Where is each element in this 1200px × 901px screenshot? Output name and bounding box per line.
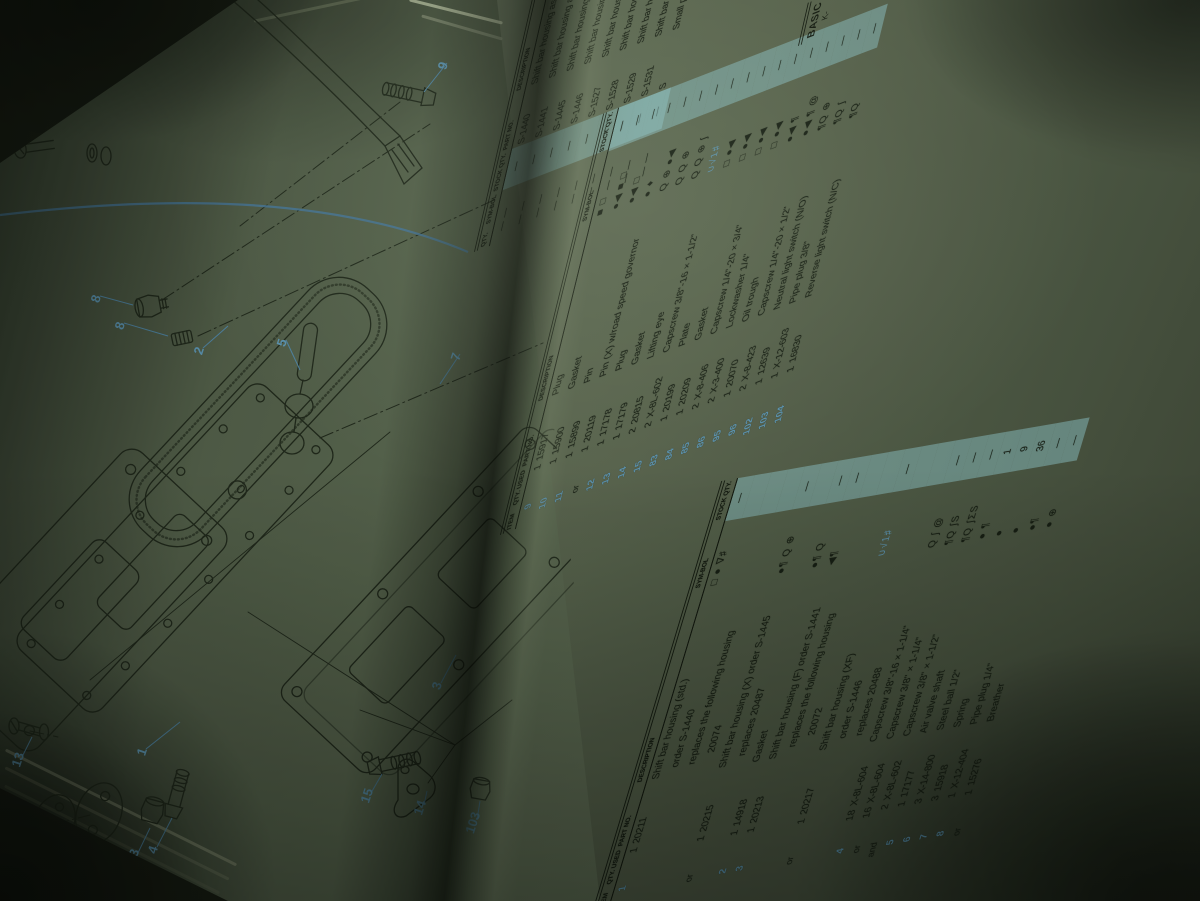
diagram-item-label: 83: [24, 873, 43, 891]
diagram-item-label: 103: [462, 810, 483, 835]
label-leader-line: [157, 818, 172, 847]
set-screw-drawing: [171, 330, 193, 346]
label-leader-line: [124, 323, 168, 336]
diagram-item-label: 7: [447, 351, 464, 363]
label-leader-line: [10, 818, 18, 848]
diagram-item-label: 5: [273, 337, 290, 349]
gasket-drawing: [112, 260, 404, 564]
diagram-item-label: 86: [0, 841, 15, 859]
label-leader-line: [146, 722, 180, 749]
diagram-item-label: 9: [434, 60, 451, 72]
pipe-plug-drawing: [133, 292, 169, 319]
label-leader-line: [85, 846, 97, 885]
label-leader-line: [38, 852, 52, 880]
main-housing-drawing: [0, 443, 233, 758]
housing-cover-drawing: [11, 378, 338, 718]
label-leader-line: [203, 326, 228, 348]
diagram-item-label: 3: [428, 680, 445, 692]
diagram-item-label: 8: [111, 320, 128, 332]
photo-of-open-parts-manual: 988257311386838410341514103 QTY.SYM-BOLS…: [0, 0, 1200, 901]
screw-drawing: [13, 135, 55, 158]
diagram-item-label: 4: [144, 843, 161, 855]
capscrew-drawing: [381, 79, 437, 108]
small-parts-drawing: [9, 718, 192, 855]
label-leader-line: [441, 655, 456, 683]
diagram-item-label: 8: [87, 293, 104, 305]
shift-bar-drawing: [232, 0, 422, 184]
label-leader-line: [100, 296, 133, 305]
diagram-item-label: 103: [121, 847, 142, 872]
centerline: [30, 102, 550, 824]
pointer-lines: [90, 432, 512, 783]
diagram-item-label: 84: [71, 878, 90, 897]
pipe-plug-drawing: [469, 776, 492, 801]
diagram-labels: 988257311386838410341514103: [0, 60, 483, 897]
washer-drawing: [87, 144, 111, 165]
